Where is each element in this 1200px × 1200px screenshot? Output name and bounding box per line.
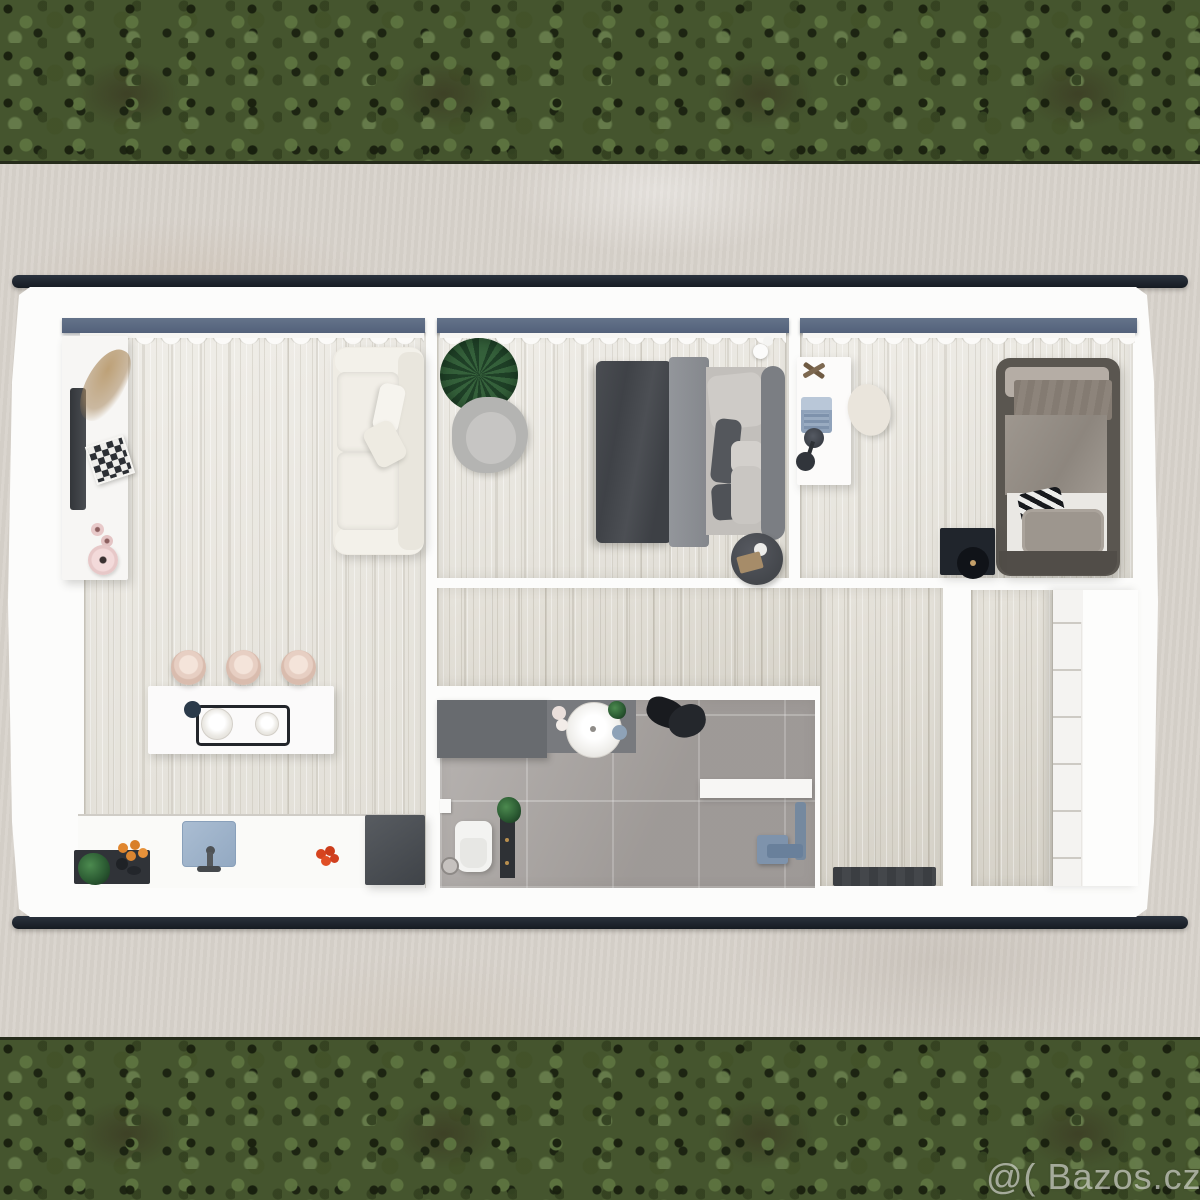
blue-dish bbox=[612, 725, 627, 740]
herb-plant bbox=[78, 853, 110, 885]
single-bed-runner bbox=[1014, 380, 1112, 420]
roof-trim-top bbox=[12, 275, 1188, 288]
mini-plant bbox=[608, 701, 626, 719]
window-rail-second-bedroom bbox=[800, 318, 1137, 333]
bowl bbox=[255, 712, 279, 736]
rose-tray bbox=[88, 545, 118, 575]
floor-plan-render: @( Bazos.cz bbox=[0, 0, 1200, 1200]
cosmetics bbox=[552, 706, 566, 720]
roof-trim-bottom bbox=[12, 916, 1188, 929]
shower-bench bbox=[700, 779, 812, 798]
dark-pot bbox=[184, 701, 201, 718]
foliage-band-top bbox=[0, 0, 1200, 164]
cooker-block bbox=[365, 815, 425, 885]
toilet-paper-holder bbox=[440, 799, 451, 813]
bar-stool bbox=[281, 650, 316, 685]
cosmetics bbox=[556, 719, 568, 731]
column-plant bbox=[497, 797, 521, 823]
site-watermark: @( Bazos.cz bbox=[986, 1156, 1200, 1198]
column-knob bbox=[505, 838, 509, 842]
desk-lamp-base bbox=[796, 452, 815, 471]
ceiling-lamp bbox=[753, 344, 768, 359]
hallway-floor-vertical bbox=[820, 588, 943, 886]
shower-arm bbox=[767, 844, 803, 858]
ceiling-lamp bbox=[763, 336, 773, 346]
double-bed-duvet bbox=[596, 361, 672, 543]
record-label bbox=[970, 560, 976, 566]
bar-stool bbox=[226, 650, 261, 685]
single-bed-footboard bbox=[999, 551, 1117, 575]
bar-stool bbox=[171, 650, 206, 685]
doormat bbox=[833, 867, 936, 886]
tomato bbox=[330, 854, 339, 863]
curtain-second-bedroom bbox=[803, 333, 1135, 359]
double-bed-folded-blanket bbox=[669, 357, 709, 547]
small-bowl bbox=[127, 866, 141, 875]
closet-floor bbox=[971, 590, 1053, 886]
basin-drain bbox=[590, 726, 596, 732]
small-bowl bbox=[116, 858, 128, 870]
column-knob bbox=[505, 861, 509, 865]
bowl bbox=[201, 708, 233, 740]
window-rail-living bbox=[62, 318, 425, 333]
storage-column bbox=[500, 817, 515, 878]
floor-drain bbox=[441, 857, 459, 875]
vanity-counter bbox=[437, 700, 547, 758]
rose-disc bbox=[91, 523, 104, 536]
headboard bbox=[761, 366, 785, 540]
toilet-lid bbox=[460, 838, 487, 868]
orange bbox=[138, 848, 148, 858]
orange bbox=[126, 851, 136, 861]
bed-pillow bbox=[731, 466, 763, 524]
armchair-seat bbox=[466, 412, 516, 464]
gray-pillow bbox=[1022, 509, 1104, 555]
wardrobe-shelves bbox=[1053, 622, 1082, 886]
window-rail-main-bedroom bbox=[437, 318, 789, 333]
faucet-bar bbox=[197, 866, 221, 872]
laptop-keys bbox=[804, 413, 829, 429]
single-bed-duvet bbox=[1005, 415, 1107, 495]
